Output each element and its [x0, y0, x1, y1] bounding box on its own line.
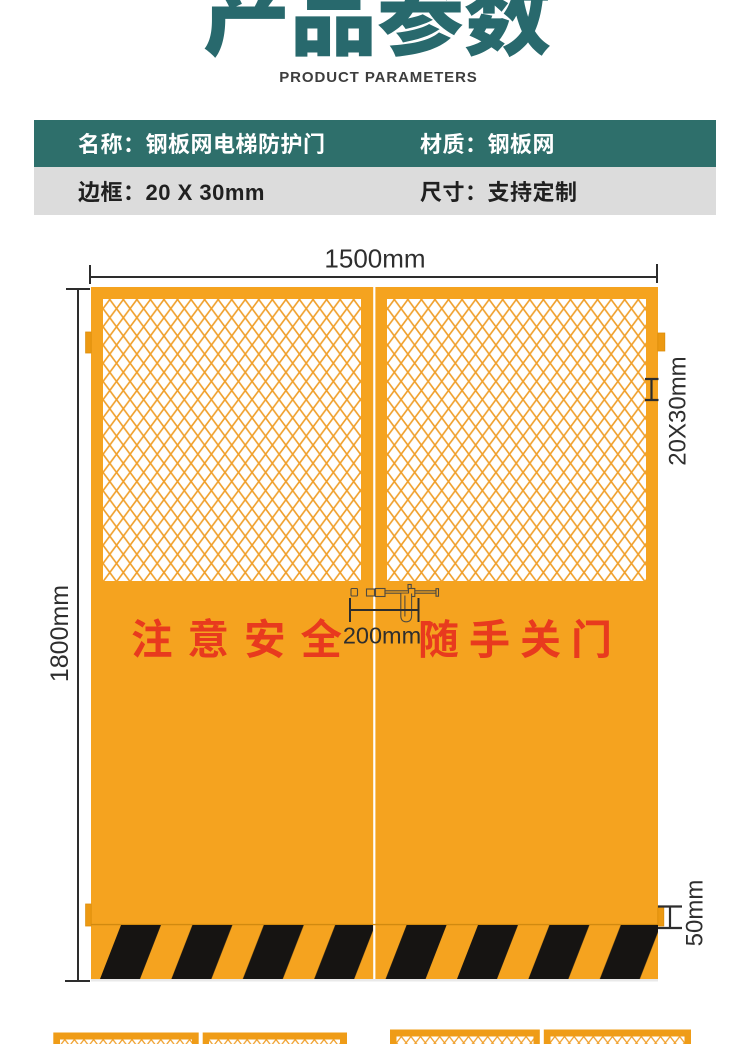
svg-text:20X30mm: 20X30mm [665, 356, 692, 465]
svg-text:随手关门: 随手关门 [418, 606, 622, 666]
svg-text:50mm: 50mm [682, 880, 709, 947]
svg-text:1800mm: 1800mm [46, 585, 74, 682]
svg-text:1500mm: 1500mm [324, 244, 425, 274]
svg-text:注意安全: 注意安全 [131, 606, 357, 666]
